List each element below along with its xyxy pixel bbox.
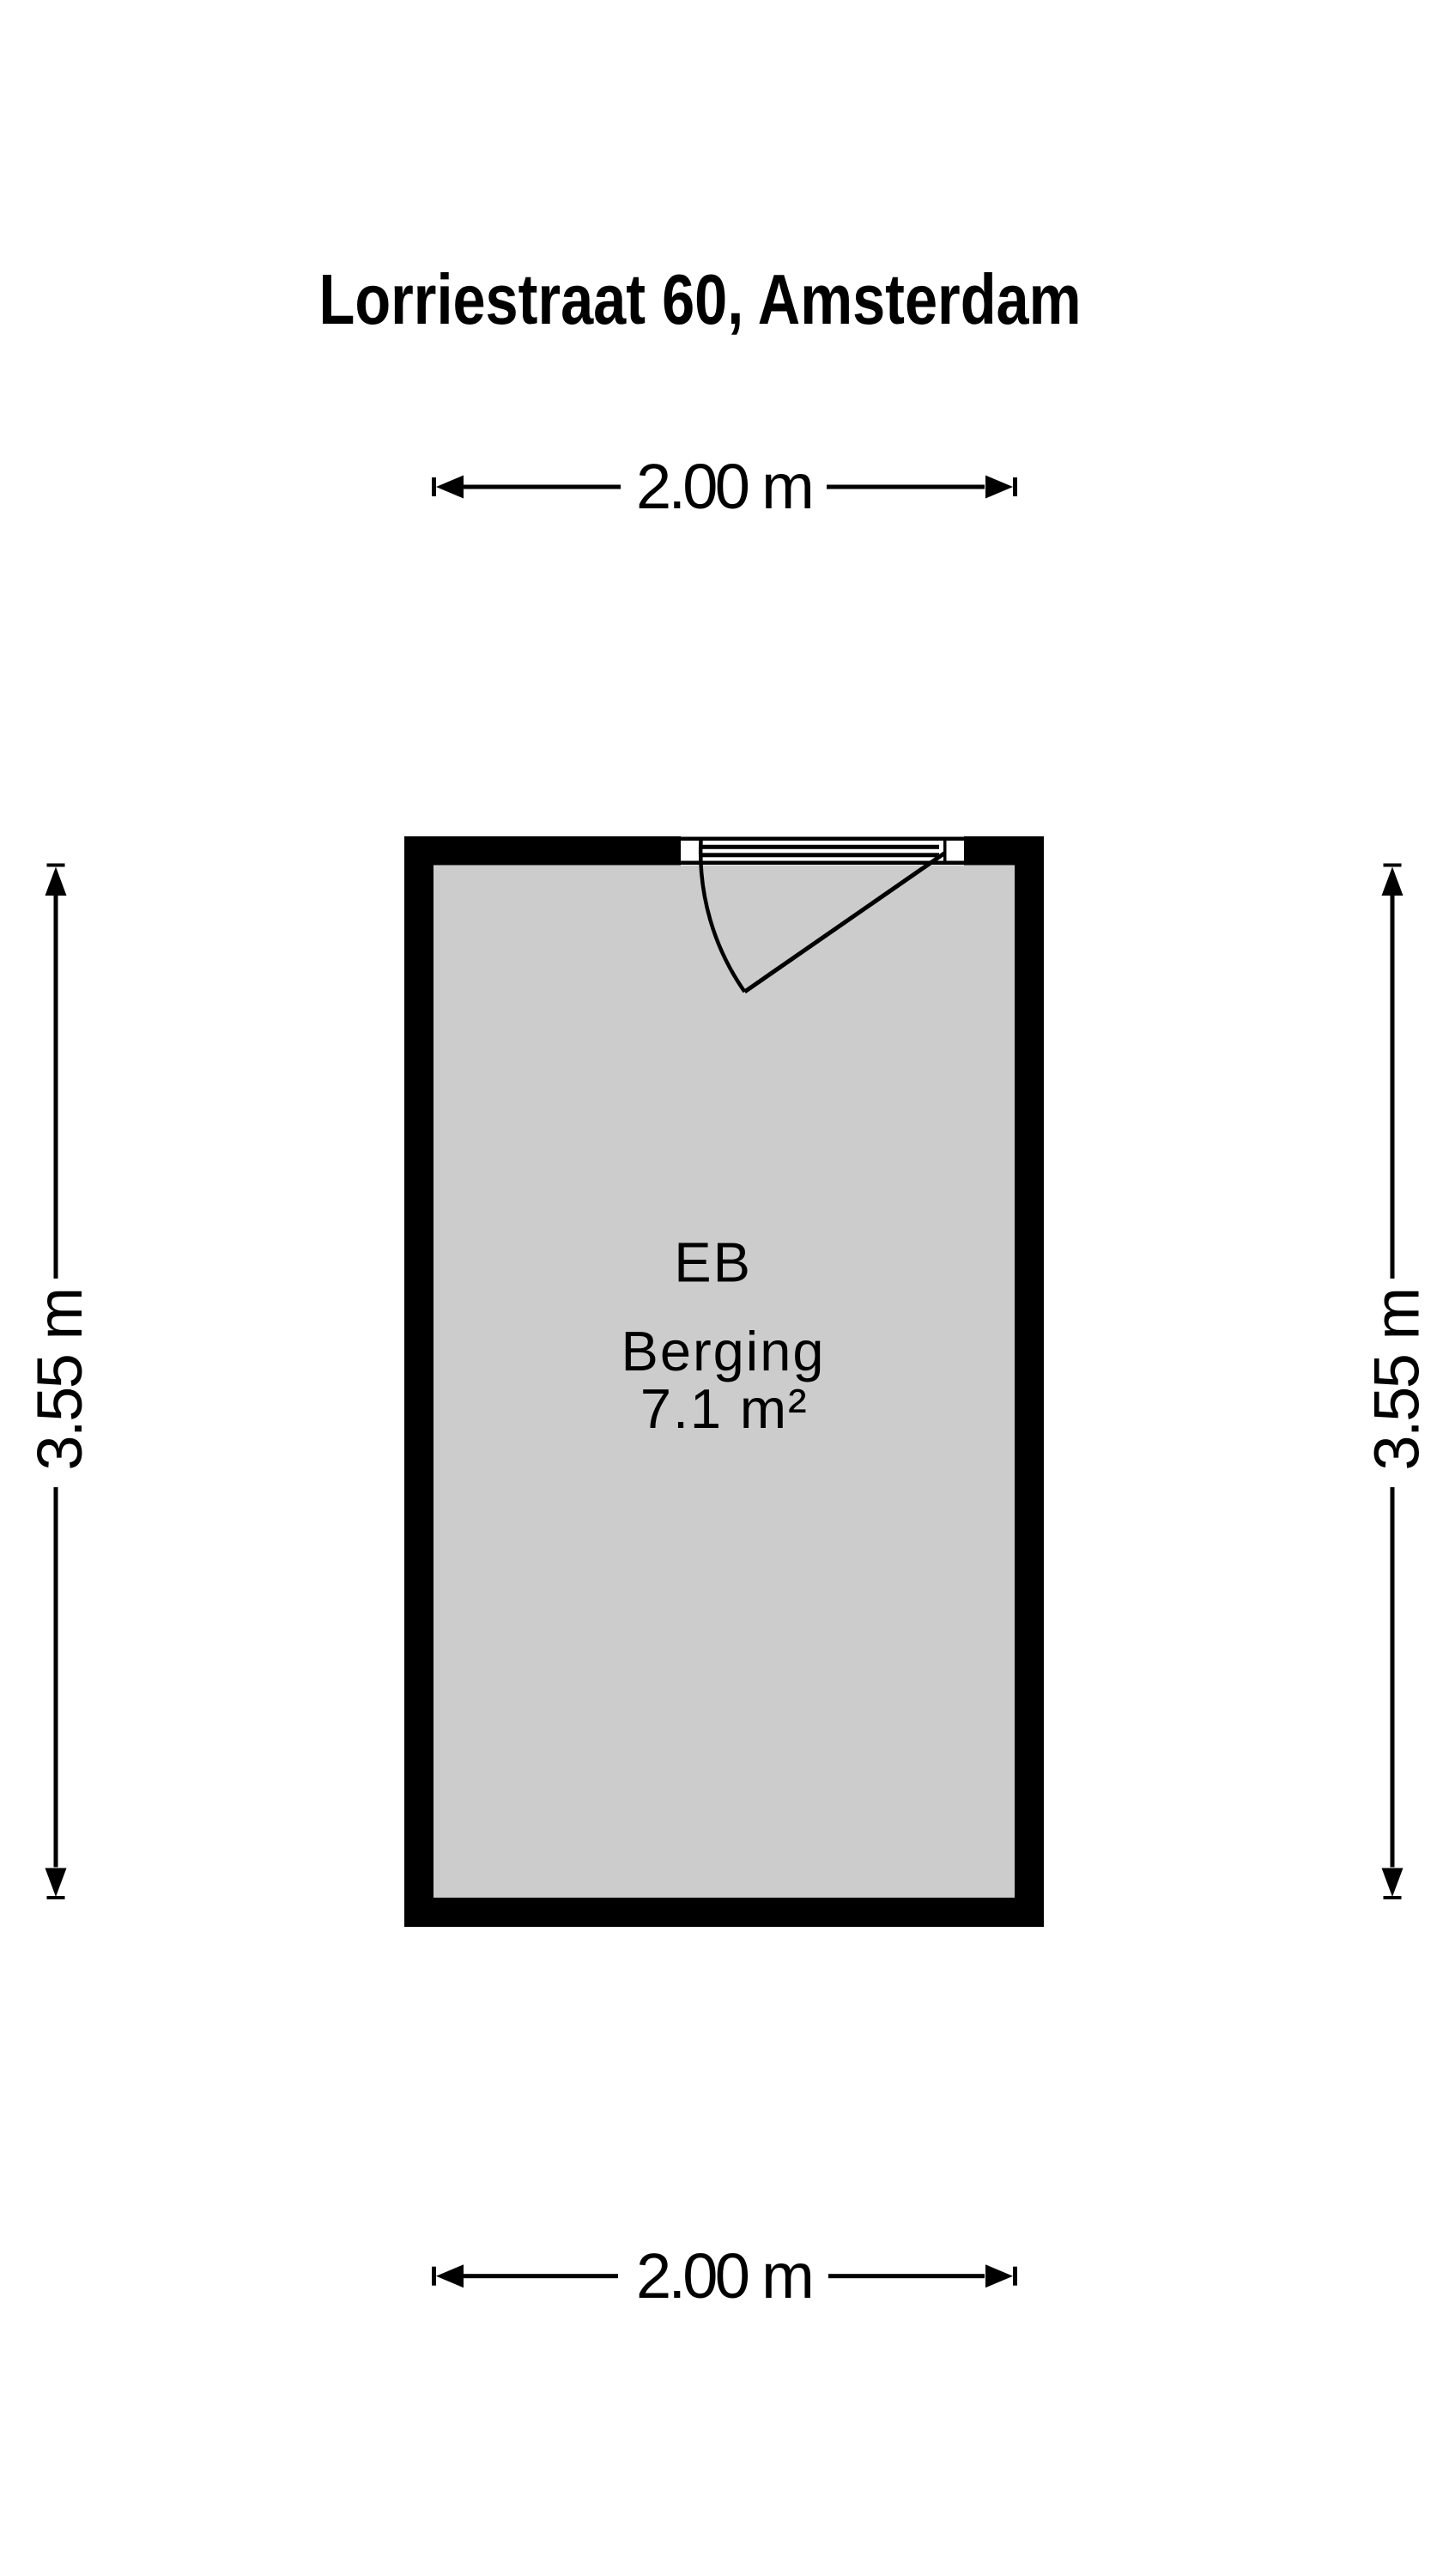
svg-text:3.55 m: 3.55 m [1361,1289,1433,1470]
svg-text:Lorriestraat 60, Amsterdam: Lorriestraat 60, Amsterdam [319,259,1082,339]
svg-text:3.55 m: 3.55 m [24,1289,95,1470]
svg-text:EB: EB [674,1231,752,1294]
svg-text:2.00 m: 2.00 m [636,451,811,522]
svg-text:Berging: Berging [621,1320,825,1382]
svg-text:7.1 m²: 7.1 m² [640,1377,809,1440]
svg-text:2.00 m: 2.00 m [636,2240,811,2312]
